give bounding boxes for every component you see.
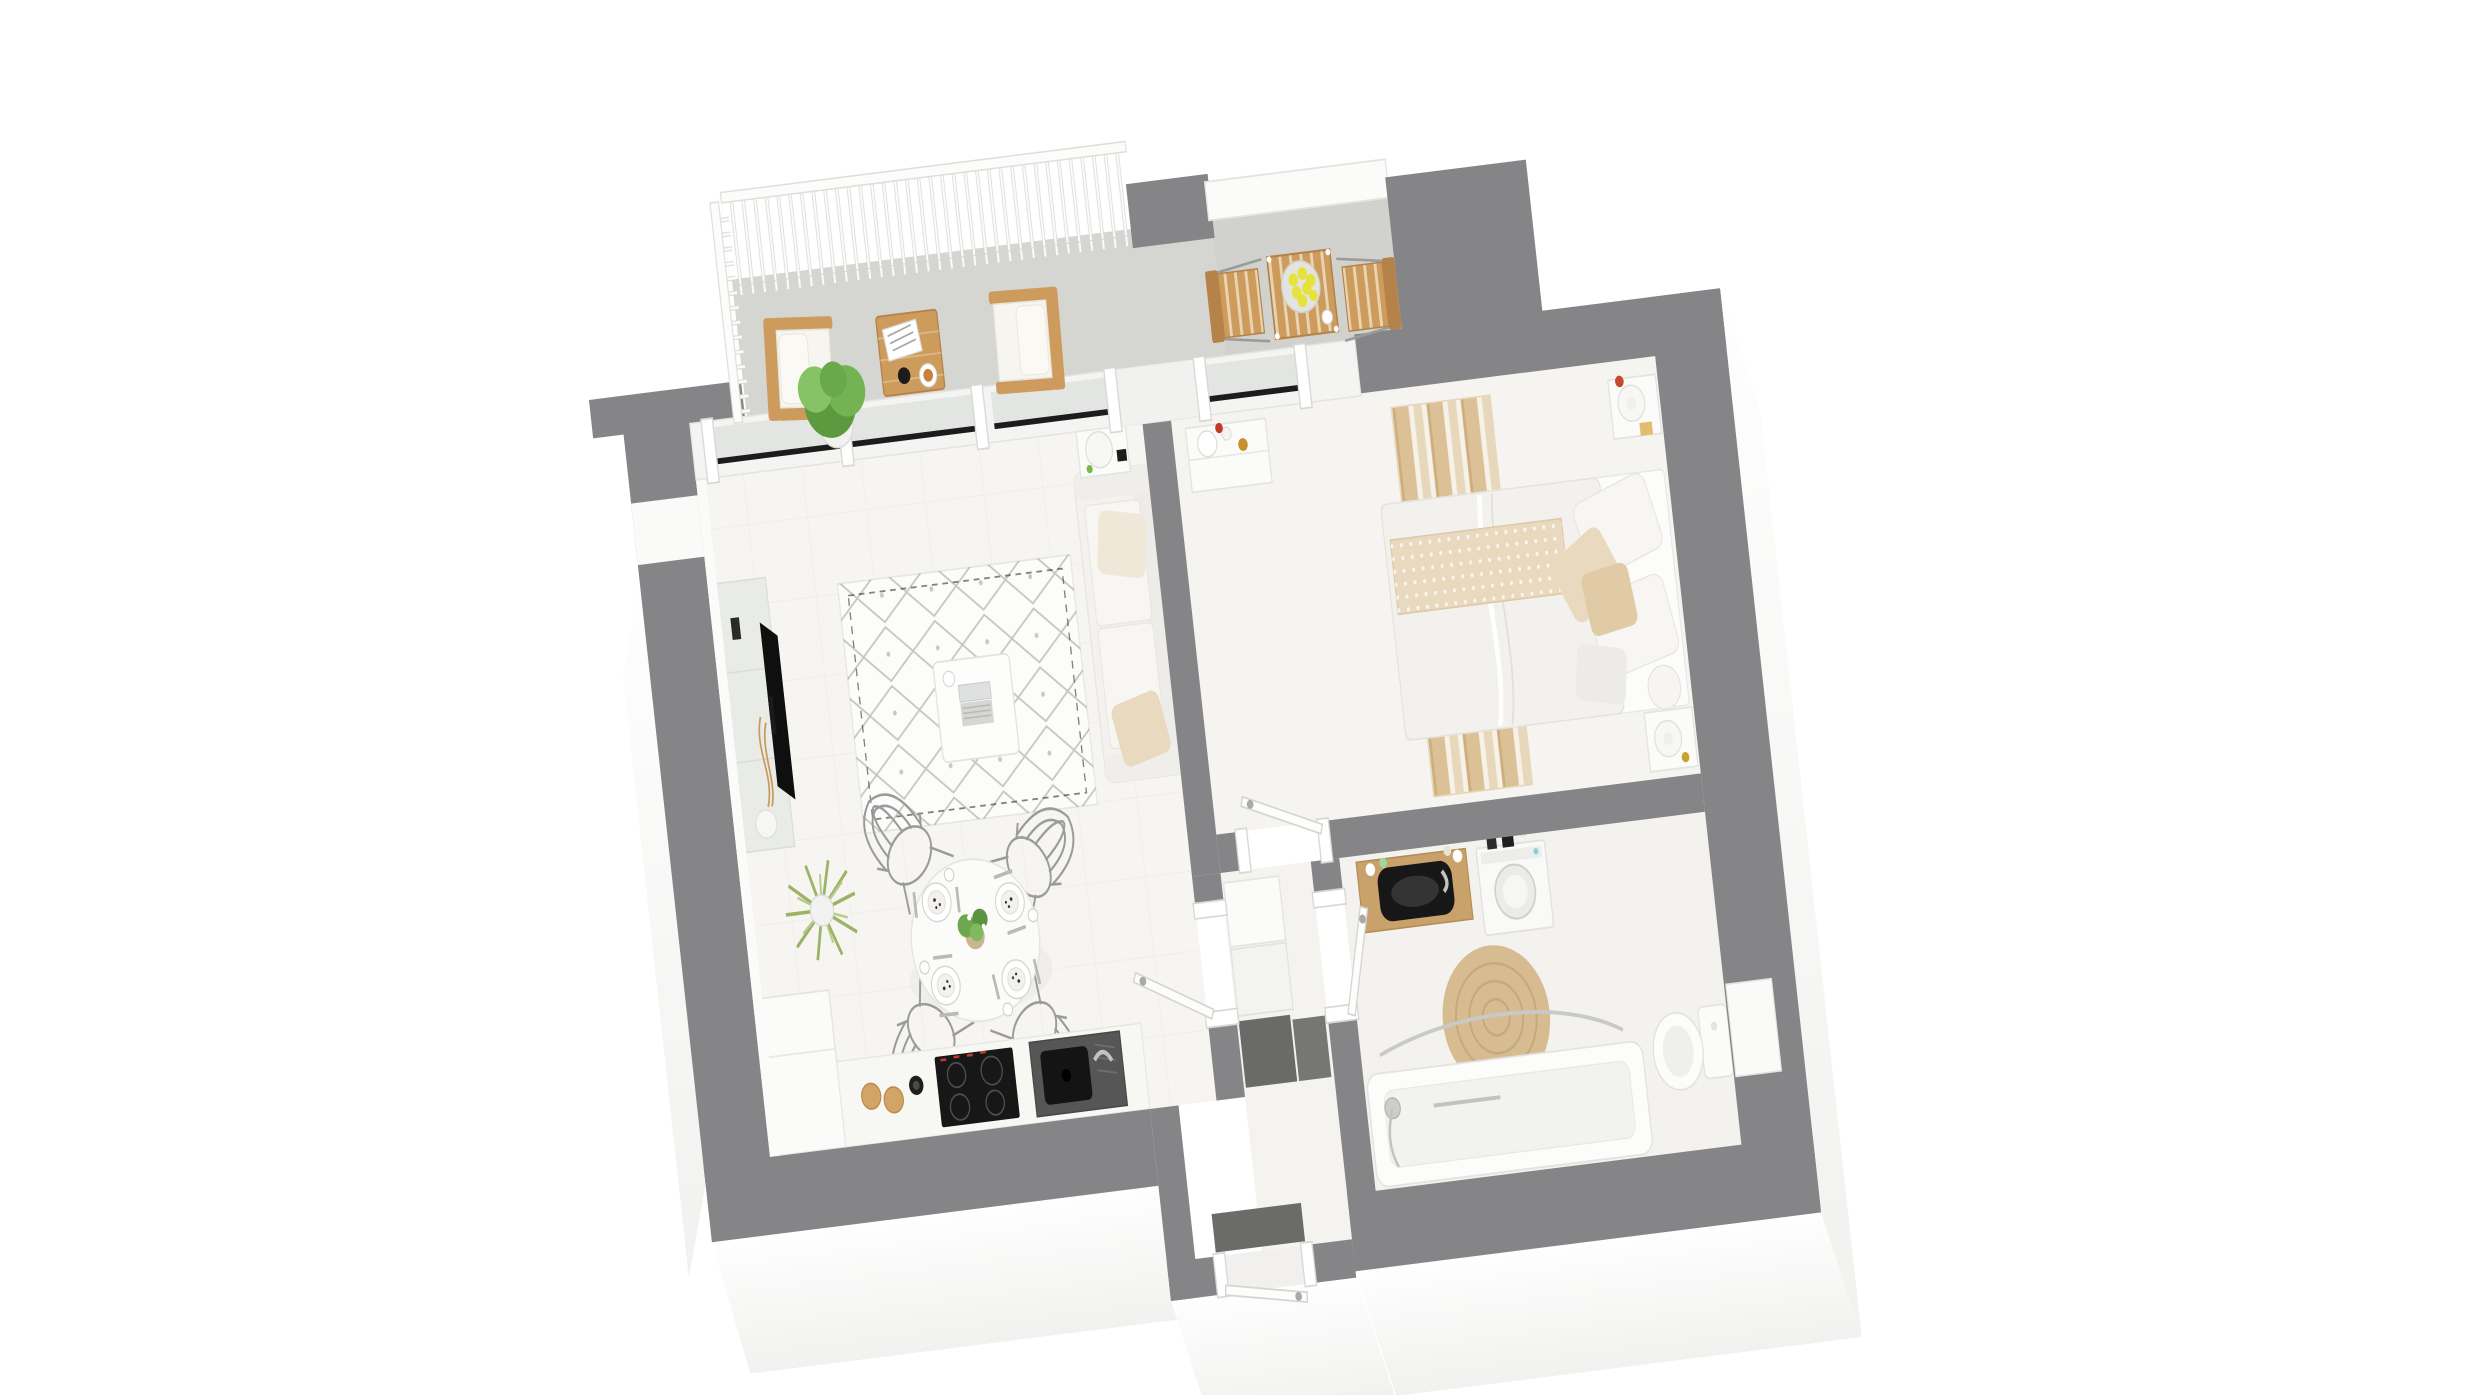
outdoor-side-table [876,309,945,396]
cooktop [934,1047,1020,1127]
bistro-table [1266,249,1339,340]
sofa-pillow-light [1097,510,1146,579]
outdoor-armchair-2 [988,286,1065,394]
nightstand-1 [1607,371,1661,439]
dresser [1185,417,1272,492]
wall-balcony-block [1126,174,1215,248]
nightstand-2 [1644,707,1698,772]
coffee-table [933,653,1020,762]
bed [1380,467,1689,742]
pillow-gray [1576,643,1627,705]
apartment [568,66,1862,1395]
wall-niche [1726,979,1782,1077]
floorplan-render [0,0,2480,1395]
closet-1 [1224,876,1286,947]
wall-left-window [631,495,704,565]
laptop [958,682,994,727]
closet-2 [1231,943,1293,1017]
floorplan-stage [0,0,2480,1395]
kitchen-sink [1029,1031,1127,1117]
